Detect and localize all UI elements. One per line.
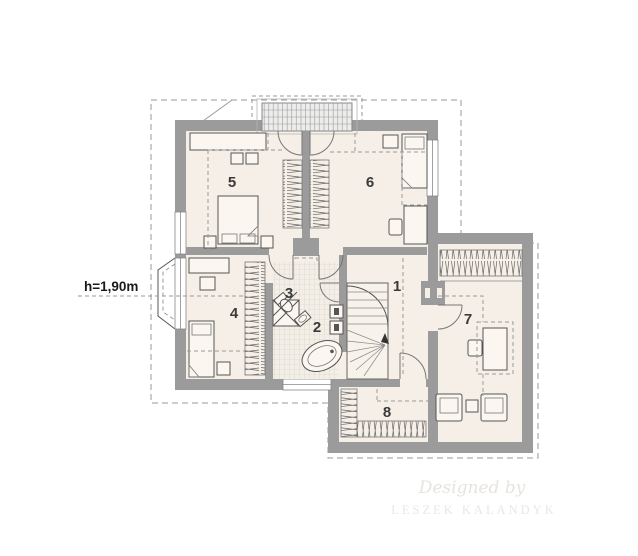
wardrobe-room7	[440, 250, 522, 276]
room-label-1: 1	[393, 278, 401, 295]
nightstand-room5-b	[261, 236, 273, 248]
watermark-caps-line: LESZEK KALANDYK	[391, 503, 556, 517]
room-label-8: 8	[383, 404, 391, 421]
room-label-2: 2	[313, 319, 321, 336]
bed-room4	[189, 321, 214, 377]
room-label-3: 3	[285, 285, 293, 302]
room-label-7: 7	[464, 311, 472, 328]
chair-room7	[468, 340, 482, 356]
chimney-notch-left	[425, 288, 430, 298]
wall-middle-right	[343, 247, 427, 255]
dresser-room5	[190, 133, 266, 150]
cabinet-room6	[383, 135, 398, 148]
nightstand-room5-a	[204, 236, 216, 248]
stool-room4	[200, 277, 215, 290]
designer-watermark: Designed by LESZEK KALANDYK	[391, 478, 556, 517]
watermark-script-line: Designed by	[418, 478, 526, 498]
wall-room4-bath	[265, 283, 273, 379]
wall-room8-top-right	[426, 379, 438, 387]
stool-room5-b	[246, 153, 258, 164]
stairs	[347, 283, 389, 379]
room-label-5: 5	[228, 174, 236, 191]
wall-bath-stairs	[339, 255, 347, 352]
wardrobe-room8-bottom	[357, 421, 426, 437]
roof-hip-line	[203, 100, 232, 121]
desk-room6	[404, 206, 427, 244]
armchair-room7-a	[436, 394, 462, 421]
wall-middle-left	[186, 247, 269, 255]
stool-room5-a	[231, 153, 243, 164]
floor-plan-page: h=1,90m 1 2 3 4 5 6 7 8 Designed by LESZ…	[0, 0, 638, 556]
wardrobe-room8-left	[341, 389, 357, 437]
desk-room7	[483, 328, 507, 370]
height-annotation-text: h=1,90m	[84, 279, 138, 294]
wall-room8-top-left	[339, 379, 400, 387]
floor-plan-drawing: h=1,90m 1 2 3 4 5 6 7 8 Designed by LESZ…	[0, 0, 638, 556]
side-table-room7	[466, 400, 478, 412]
armchair-room7-b	[481, 394, 507, 421]
chimney-center-upper	[293, 238, 319, 256]
dormer-bay	[158, 258, 175, 329]
room-label-6: 6	[366, 174, 374, 191]
nightstand-room4	[217, 362, 230, 375]
room-label-4: 4	[230, 305, 239, 322]
bed-room5	[218, 196, 258, 244]
wall-rooms-5-6	[302, 131, 310, 238]
balcony-glazing	[252, 96, 362, 134]
bed-room6	[402, 134, 427, 188]
wardrobe-room5	[283, 160, 302, 228]
chair-room6	[389, 219, 402, 235]
wardrobe-room6	[310, 160, 329, 228]
dresser-room4	[189, 258, 229, 273]
wardrobe-room4	[245, 262, 265, 375]
